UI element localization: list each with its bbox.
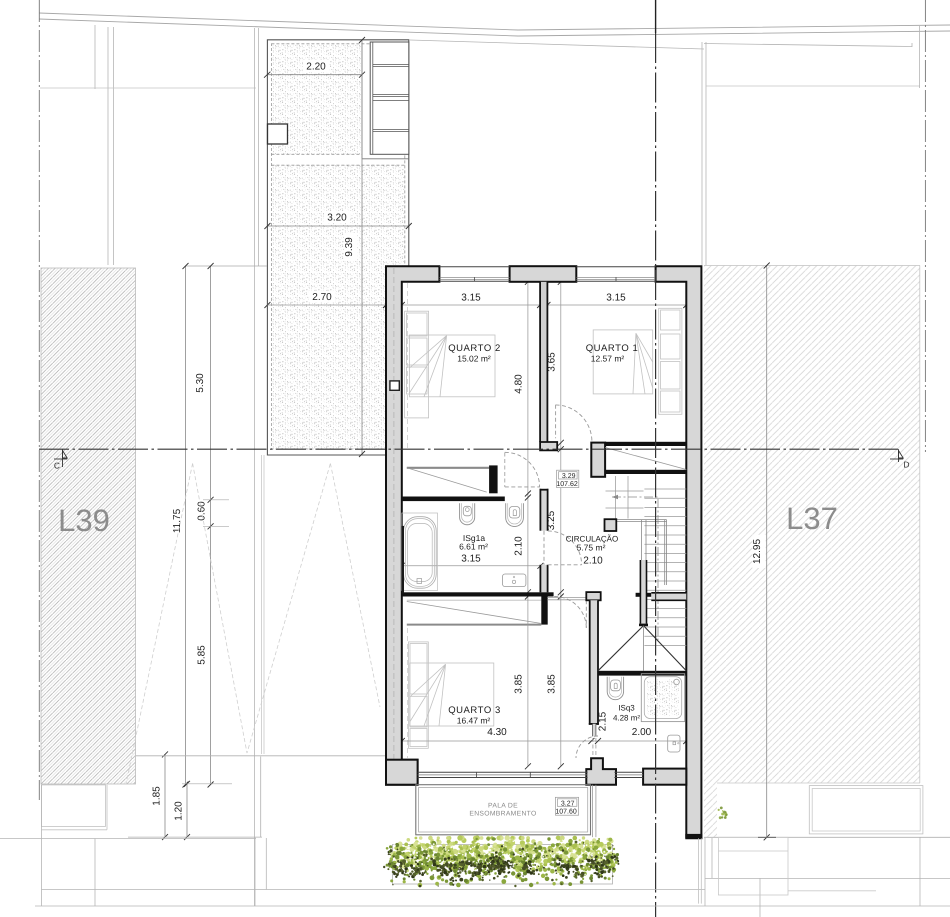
- svg-text:5.75 m²: 5.75 m²: [577, 543, 606, 553]
- svg-text:12.57 m²: 12.57 m²: [591, 354, 625, 364]
- svg-text:3.15: 3.15: [606, 292, 626, 303]
- svg-text:ENSOMBRAMENTO: ENSOMBRAMENTO: [469, 811, 536, 818]
- svg-text:4.80: 4.80: [514, 374, 525, 394]
- svg-text:QUARTO 3: QUARTO 3: [448, 705, 501, 716]
- svg-text:L37: L37: [786, 501, 838, 536]
- svg-text:PALA DE: PALA DE: [488, 803, 518, 810]
- svg-text:2.70: 2.70: [312, 292, 332, 303]
- svg-text:3.15: 3.15: [461, 292, 481, 303]
- svg-text:107.62: 107.62: [556, 481, 578, 488]
- svg-text:11.75: 11.75: [172, 508, 183, 533]
- svg-text:QUARTO 1: QUARTO 1: [586, 343, 639, 354]
- svg-text:3.20: 3.20: [327, 213, 347, 224]
- svg-text:5.30: 5.30: [195, 373, 206, 393]
- svg-text:0.60: 0.60: [197, 501, 208, 521]
- svg-text:4.30: 4.30: [487, 727, 507, 738]
- svg-text:D: D: [903, 460, 909, 470]
- svg-text:2.20: 2.20: [306, 62, 326, 73]
- svg-text:9.39: 9.39: [344, 237, 355, 257]
- svg-text:4.28 m²: 4.28 m²: [613, 714, 640, 723]
- svg-text:2.10: 2.10: [514, 536, 525, 556]
- svg-text:QUARTO 2: QUARTO 2: [448, 343, 501, 354]
- svg-text:3.27: 3.27: [561, 800, 575, 807]
- svg-text:L39: L39: [58, 503, 110, 538]
- svg-text:3.85: 3.85: [547, 674, 558, 694]
- svg-text:3.85: 3.85: [514, 674, 525, 694]
- svg-text:12.95: 12.95: [752, 539, 763, 564]
- svg-text:5.85: 5.85: [197, 645, 208, 665]
- svg-text:1.85: 1.85: [152, 786, 163, 806]
- svg-text:107.60: 107.60: [555, 809, 577, 816]
- svg-text:1.20: 1.20: [174, 801, 185, 821]
- svg-text:ISq3: ISq3: [618, 704, 635, 713]
- svg-text:C: C: [54, 461, 60, 471]
- svg-text:2.15: 2.15: [598, 711, 609, 731]
- svg-text:16.47 m²: 16.47 m²: [457, 716, 491, 726]
- svg-text:6.61 m²: 6.61 m²: [459, 542, 488, 552]
- svg-text:3.29: 3.29: [562, 473, 576, 480]
- svg-text:2.10: 2.10: [583, 556, 603, 567]
- svg-text:3.15: 3.15: [461, 554, 481, 565]
- svg-text:15.02 m²: 15.02 m²: [457, 354, 491, 364]
- svg-text:2.00: 2.00: [632, 727, 652, 738]
